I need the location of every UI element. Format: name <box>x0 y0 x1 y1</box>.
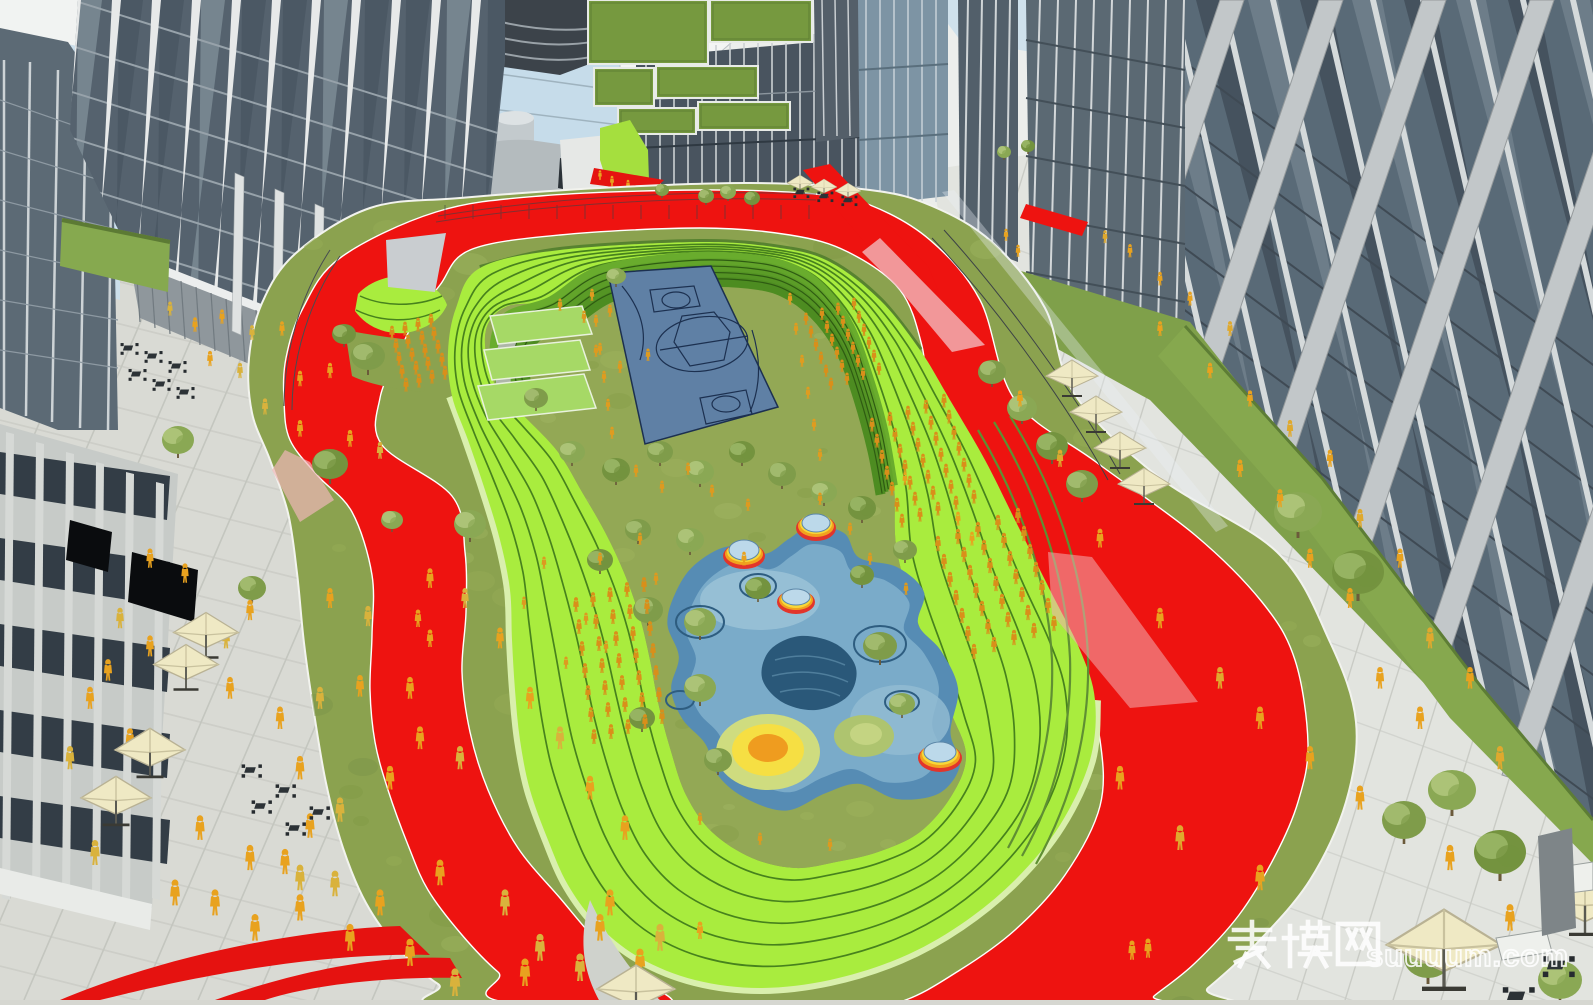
svg-text:suuuum.com: suuuum.com <box>1366 938 1569 973</box>
